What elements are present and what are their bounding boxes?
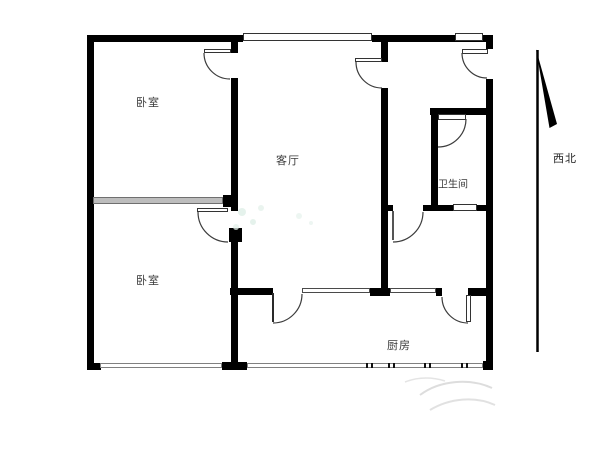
door-arc-kitchen-left — [273, 294, 302, 323]
wall-livingroom-left-upper — [231, 78, 238, 211]
window-tick — [388, 363, 390, 368]
wall-right-stub-above-entry — [486, 35, 493, 49]
door-arc-livingroom — [356, 62, 382, 88]
compass-label: 西北 — [553, 150, 577, 166]
wall-right-main — [486, 79, 493, 370]
wall-bottom-foot — [222, 362, 247, 370]
wall-livingroom-left-lower — [231, 240, 238, 363]
window-tick — [466, 363, 468, 368]
wall-hall-seg-c — [477, 205, 490, 211]
wall-kitchen-junction-block — [370, 288, 390, 296]
window-tick — [366, 363, 368, 368]
wall-bathroom-left — [431, 115, 438, 205]
door-arc-bedroom-top — [204, 53, 230, 79]
door-leaf-bedroom-top — [204, 49, 231, 53]
door-arc-kitchen-right — [442, 297, 468, 323]
wall-kitchen-seg-a — [230, 288, 273, 295]
window-tick — [371, 363, 373, 368]
window-bottom-bedroom — [100, 363, 222, 368]
door-leaf-entry — [462, 49, 488, 54]
window-tick — [461, 363, 463, 368]
wall-livingroom-right-main — [381, 88, 388, 296]
window-kitchen-pass-b — [390, 288, 436, 293]
room-label-bathroom: 卫生间 — [438, 176, 468, 191]
window-kitchen-pass-a — [302, 288, 370, 293]
door-arc-entry — [462, 53, 487, 78]
door-leaf-kitchen-left — [272, 293, 274, 322]
wall-kitchen-seg-b — [468, 288, 490, 296]
wall-top-left — [88, 35, 243, 42]
room-label-bedroom-bottom: 卧室 — [136, 272, 160, 288]
door-arc-bathroom — [438, 119, 466, 147]
window-tick — [429, 363, 431, 368]
wall-bottom-right-corner — [483, 361, 493, 370]
partition-between-bedrooms — [93, 197, 223, 204]
window-top-livingroom — [243, 33, 372, 41]
wall-hall-seg-b — [423, 205, 453, 211]
window-bathroom-bottom — [453, 204, 477, 211]
door-arc-bedroom-bottom — [198, 212, 228, 242]
window-bottom-kitchen — [247, 363, 483, 368]
door-leaf-livingroom — [355, 58, 382, 62]
door-leaf-corridor — [392, 211, 394, 240]
window-top-entry — [455, 33, 483, 41]
window-tick — [393, 363, 395, 368]
door-leaf-bathroom — [438, 114, 466, 120]
floor-plan-canvas: 卧室 卧室 客厅 卫生间 厨房 西北 — [0, 0, 600, 450]
wall-divider-junction-block — [223, 195, 238, 207]
room-label-living-room: 客厅 — [276, 152, 300, 168]
wall-livingroom-left-stub — [231, 42, 238, 53]
north-arrow-icon — [536, 49, 557, 352]
room-label-bedroom-top: 卧室 — [136, 94, 160, 110]
room-label-kitchen: 厨房 — [387, 337, 411, 353]
window-tick — [424, 363, 426, 368]
wall-livingroom-right-stub — [381, 42, 388, 62]
wall-kitchen-square — [436, 288, 442, 296]
door-arc-corridor — [393, 212, 423, 242]
door-leaf-kitchen-right — [466, 295, 471, 322]
door-leaf-bedroom-bottom — [197, 208, 228, 212]
